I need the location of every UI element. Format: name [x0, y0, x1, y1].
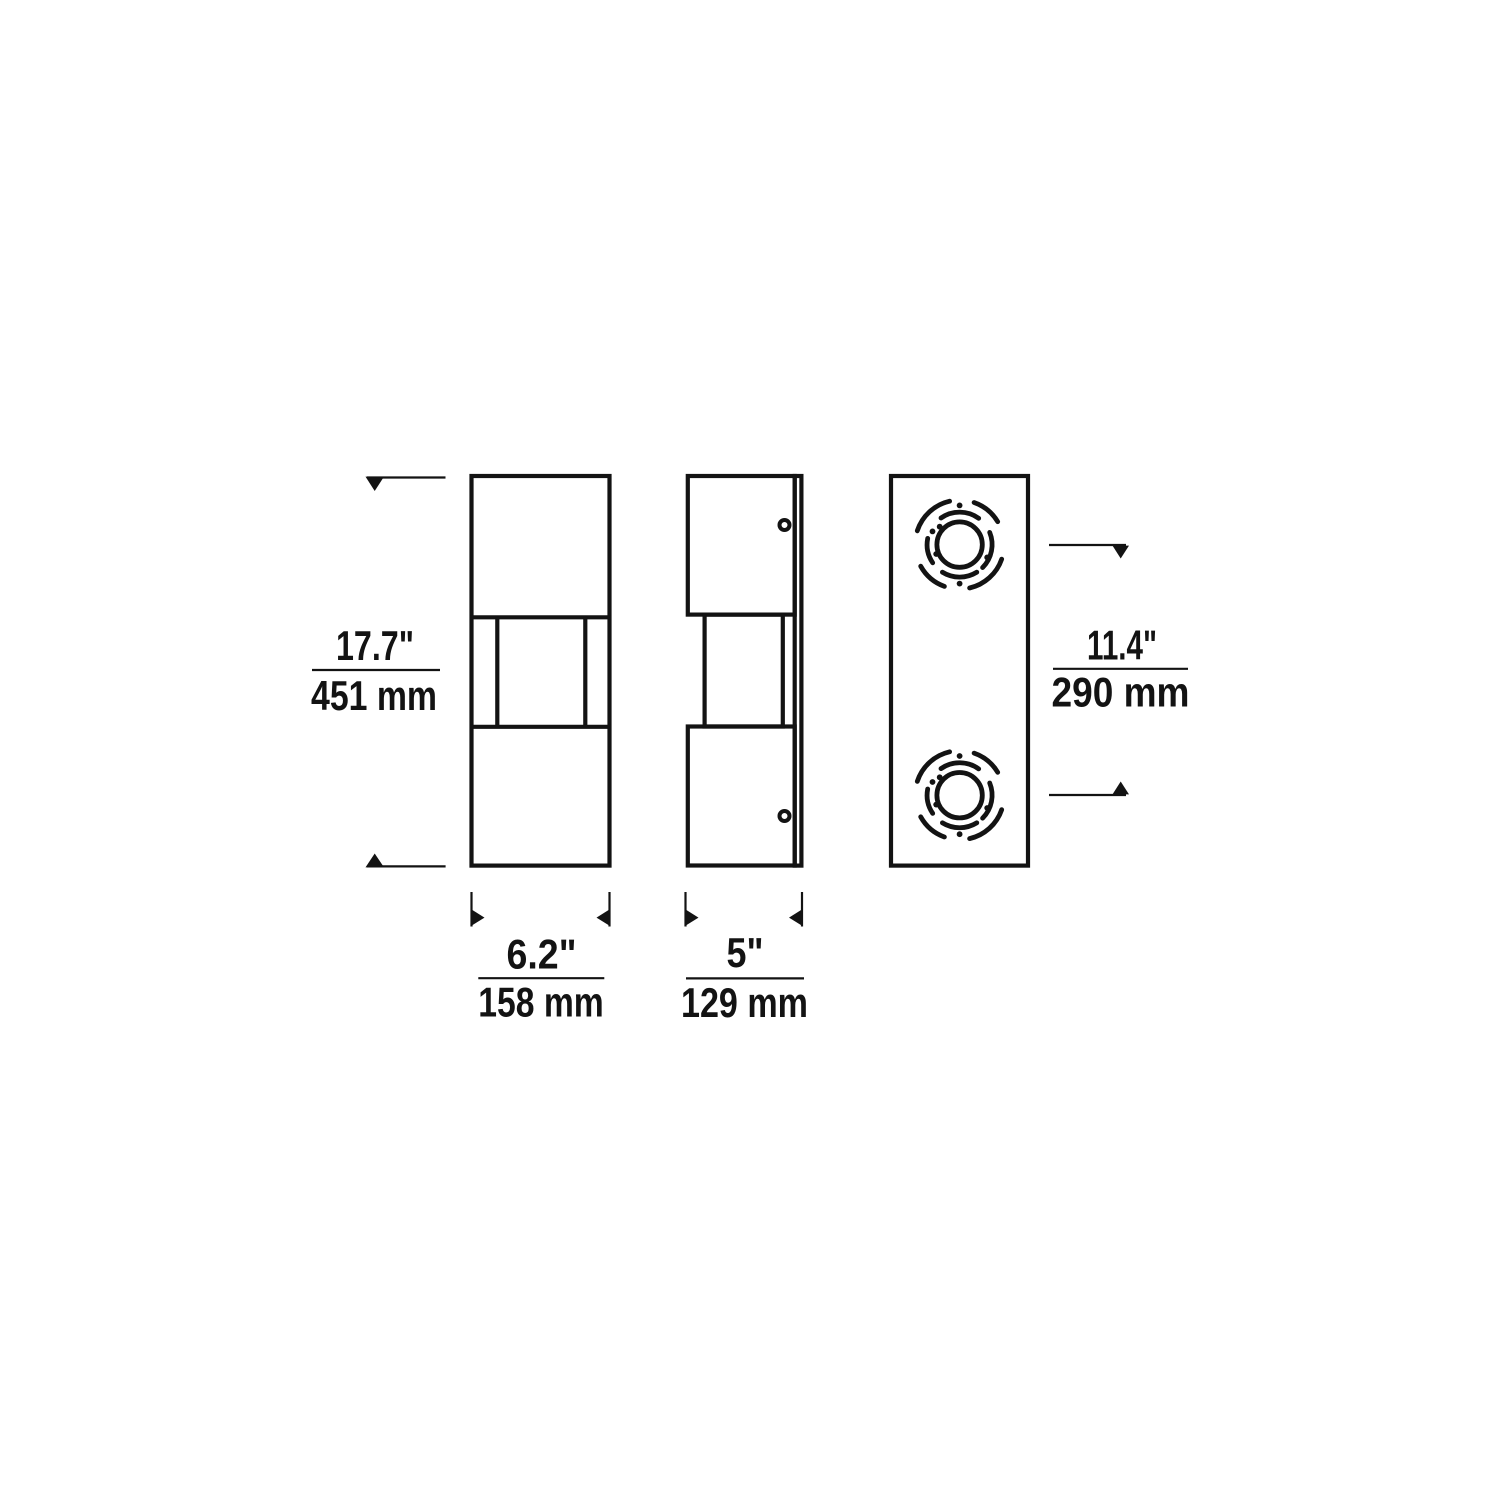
svg-text:451 mm: 451 mm	[311, 672, 437, 719]
svg-text:11.4": 11.4"	[1087, 622, 1157, 669]
svg-text:6.2": 6.2"	[507, 931, 577, 978]
svg-text:5": 5"	[727, 929, 764, 976]
svg-text:17.7": 17.7"	[336, 622, 414, 669]
svg-text:158 mm: 158 mm	[478, 979, 604, 1026]
svg-text:129 mm: 129 mm	[681, 979, 808, 1026]
svg-text:290 mm: 290 mm	[1052, 669, 1190, 716]
